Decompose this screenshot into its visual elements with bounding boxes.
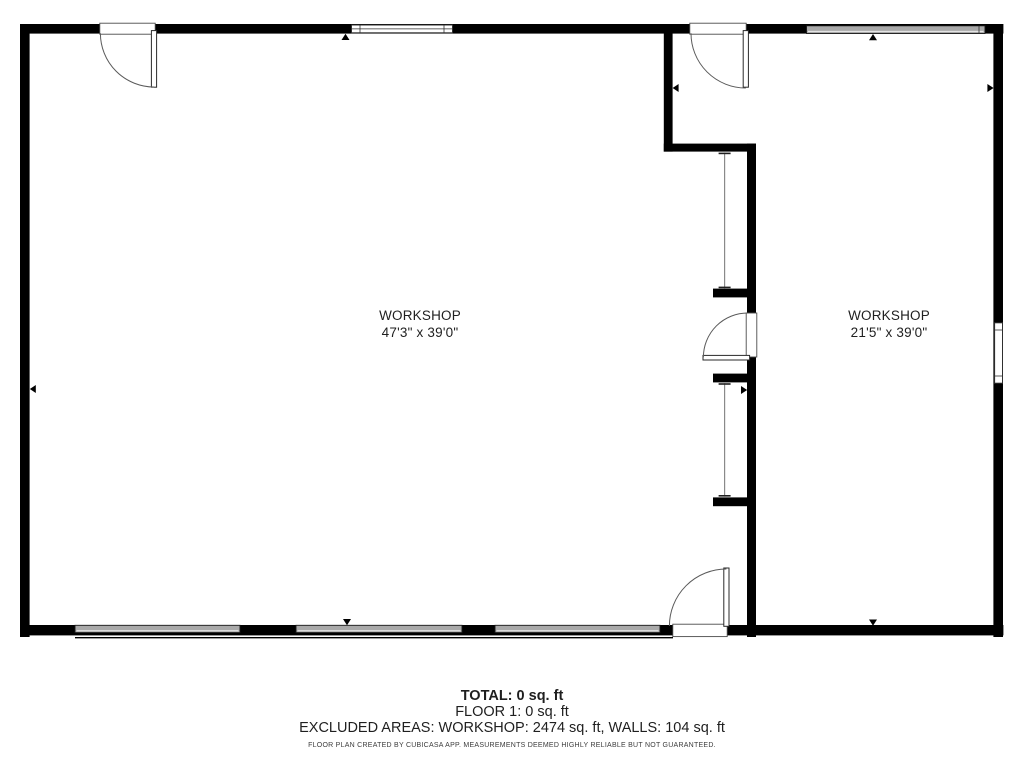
window-top-left bbox=[352, 25, 453, 33]
door-bottom bbox=[669, 568, 729, 637]
floor-plan-page: WORKSHOP 47'3" x 39'0" WORKSHOP 21'5" x … bbox=[0, 0, 1024, 768]
wall-stub-1 bbox=[713, 289, 747, 298]
window-bottom-3 bbox=[495, 625, 660, 632]
window-top-right bbox=[807, 26, 986, 34]
door-opening bbox=[100, 23, 155, 34]
room-name: WORKSHOP bbox=[848, 308, 930, 325]
door-top-left bbox=[100, 23, 157, 87]
door-opening bbox=[746, 313, 757, 357]
room-label-workshop-left: WORKSHOP 47'3" x 39'0" bbox=[379, 308, 461, 341]
measurement-arrow bbox=[30, 385, 36, 393]
door-opening bbox=[690, 23, 746, 34]
door-top-right bbox=[690, 23, 749, 88]
door-leaf bbox=[724, 568, 729, 626]
left-wall bbox=[20, 24, 30, 637]
interior-wall-lower bbox=[747, 357, 756, 638]
total-area-text: TOTAL: 0 sq. ft bbox=[0, 688, 1024, 704]
room-dimensions: 21'5" x 39'0" bbox=[848, 325, 930, 342]
floor-area-text: FLOOR 1: 0 sq. ft bbox=[0, 704, 1024, 720]
wall-stub-2 bbox=[713, 374, 747, 383]
interior-wall-top-connector bbox=[664, 24, 673, 152]
door-leaf bbox=[151, 31, 156, 88]
measurement-arrow bbox=[342, 34, 350, 40]
door-opening bbox=[673, 624, 727, 636]
measurement-arrow bbox=[987, 84, 993, 92]
interior-wall-jog bbox=[664, 144, 756, 152]
door-swing-arc bbox=[100, 33, 154, 87]
room-label-workshop-right: WORKSHOP 21'5" x 39'0" bbox=[848, 308, 930, 341]
plan-summary: TOTAL: 0 sq. ft FLOOR 1: 0 sq. ft EXCLUD… bbox=[0, 688, 1024, 737]
measurement-arrow bbox=[741, 386, 747, 394]
door-swing-arc bbox=[691, 33, 746, 88]
door-swing-arc bbox=[703, 313, 747, 357]
room-dimensions: 47'3" x 39'0" bbox=[379, 325, 461, 342]
interior-wall bbox=[664, 24, 756, 637]
measurement-arrow bbox=[673, 84, 679, 92]
window-bottom-2 bbox=[296, 625, 462, 632]
excluded-areas-text: EXCLUDED AREAS: WORKSHOP: 2474 sq. ft, W… bbox=[0, 720, 1024, 736]
sliding-door-panel-upper bbox=[719, 153, 731, 289]
floor-plan-drawing bbox=[0, 0, 1024, 768]
disclaimer-text: FLOOR PLAN CREATED BY CUBICASA APP. MEAS… bbox=[0, 742, 1024, 749]
measurement-arrow bbox=[869, 620, 877, 626]
room-name: WORKSHOP bbox=[379, 308, 461, 325]
door-interior-middle bbox=[703, 313, 757, 360]
wall-stub-3 bbox=[713, 497, 747, 506]
measurement-arrow bbox=[869, 34, 877, 40]
door-leaf bbox=[703, 355, 750, 360]
window-bottom-1 bbox=[75, 625, 240, 632]
interior-wall-upper bbox=[747, 144, 756, 314]
door-swing-arc bbox=[669, 569, 726, 626]
measurement-arrow bbox=[343, 619, 351, 625]
window-right-wall bbox=[995, 323, 1003, 383]
sliding-door-panel-lower bbox=[719, 383, 731, 496]
door-leaf bbox=[743, 31, 748, 88]
